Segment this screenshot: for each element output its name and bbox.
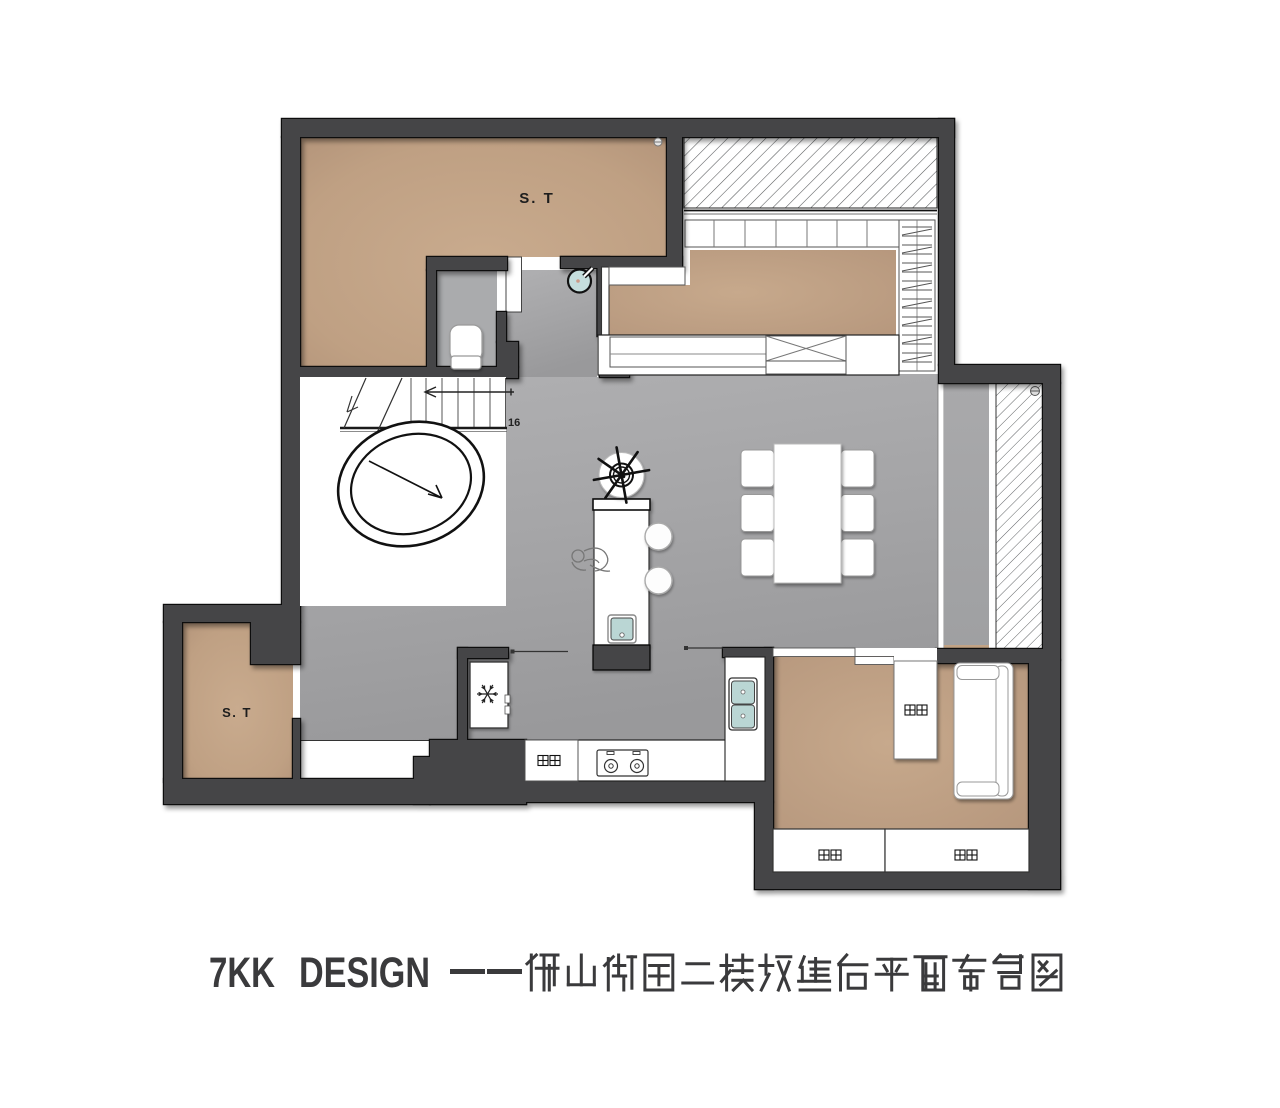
- svg-text:7KK: 7KK: [209, 949, 275, 997]
- svg-text:S. T: S. T: [519, 190, 555, 207]
- svg-text:DESIGN: DESIGN: [299, 949, 430, 997]
- svg-text:16: 16: [508, 417, 520, 429]
- svg-text:S. T: S. T: [222, 705, 252, 720]
